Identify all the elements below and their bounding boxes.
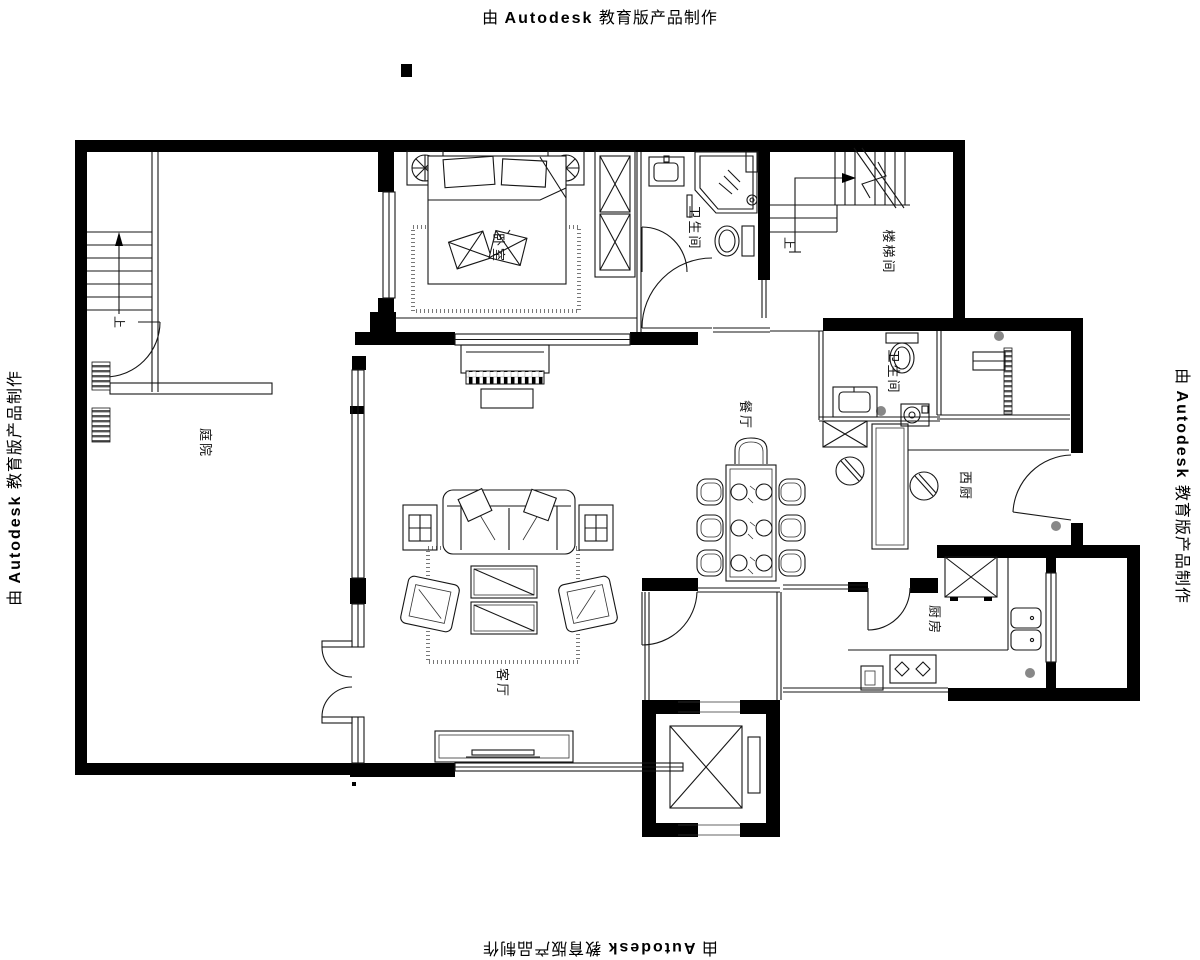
label-west-kitchen: 西厨: [958, 471, 973, 501]
corridor-door: [642, 592, 697, 645]
counter-box: [861, 666, 883, 690]
kitchen-fixtures: [848, 557, 1041, 690]
armchair-right: [558, 575, 619, 633]
living-furniture: [400, 345, 619, 762]
living-window-top: [455, 334, 630, 345]
sink-icon: [833, 387, 877, 417]
kitchen-window: [1046, 573, 1056, 662]
wardrobe-icon: [595, 151, 635, 277]
label-kitchen: 厨房: [927, 605, 942, 635]
label-living: 客厅: [495, 668, 510, 698]
corner-cabinet-icon: [823, 421, 867, 447]
doors: [105, 227, 1071, 723]
label-courtyard: 庭院: [198, 428, 213, 458]
door-stop: [1025, 668, 1035, 678]
fridge-icon: [945, 557, 997, 601]
label-up-stairwell: 上: [782, 237, 796, 249]
place-settings: [731, 484, 772, 574]
westkitchen-door: [1013, 455, 1071, 520]
label-master-bath: 卫生间: [687, 205, 702, 250]
tv-cabinet-icon: [435, 731, 573, 762]
living-window-left: [352, 370, 364, 763]
bar-stool: [836, 457, 864, 485]
coffee-tables: [471, 566, 537, 634]
bedroom-furniture: [407, 151, 635, 311]
bedroom-window: [383, 192, 395, 298]
cistern: [746, 152, 758, 172]
stove-icon: [890, 655, 936, 683]
structural-walls: [75, 64, 1140, 786]
piano-icon: [461, 345, 549, 408]
dining-chairs: [697, 438, 805, 576]
side-table-right: [579, 505, 613, 550]
door-stop: [994, 331, 1004, 341]
label-dining: 餐厅: [738, 400, 753, 430]
elevator-shaft: [642, 700, 780, 837]
kitchen-door: [868, 588, 910, 630]
sofa-icon: [443, 489, 575, 554]
bar-stool: [910, 472, 938, 500]
toilet-icon: [715, 226, 754, 256]
floorplan-drawing: 庭院 卧室 卫生间 楼梯间 卫生间 餐厅 西厨 厨房 客厅 上 上: [0, 0, 1200, 960]
sink-icon: [649, 156, 684, 186]
living-french-door: [322, 641, 352, 723]
double-sink-icon: [1011, 608, 1041, 650]
floorplan-canvas: 由 Autodesk 教育版产品制作 由 Autodesk 教育版产品制作 由 …: [0, 0, 1200, 960]
island-counter: [872, 424, 908, 549]
floor-drain: [747, 195, 757, 205]
door-stop: [1051, 521, 1061, 531]
bed-icon: [428, 156, 566, 284]
west-kitchen-furniture: [836, 352, 1069, 549]
master-bath-fixtures: [649, 152, 758, 256]
label-up-left: 上: [112, 316, 126, 328]
washing-machine-icon: [901, 404, 929, 426]
label-stairwell: 楼梯间: [881, 229, 896, 274]
hall-dining-door: [642, 258, 712, 328]
shower-icon: [695, 152, 757, 213]
label-small-bath: 卫生间: [886, 349, 901, 394]
side-table-left: [403, 505, 437, 550]
dining-furniture: [697, 438, 805, 581]
courtyard-stairs: [87, 232, 152, 442]
piano-bench: [481, 389, 533, 408]
armchair-left: [400, 575, 461, 633]
label-bedroom: 卧室: [491, 233, 506, 263]
